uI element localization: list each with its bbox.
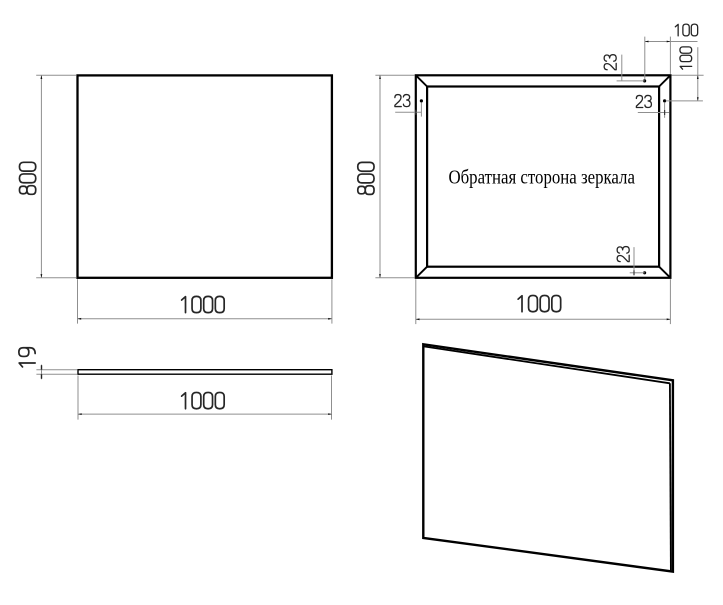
svg-text:Обратная сторона зеркала: Обратная сторона зеркала bbox=[448, 167, 635, 188]
